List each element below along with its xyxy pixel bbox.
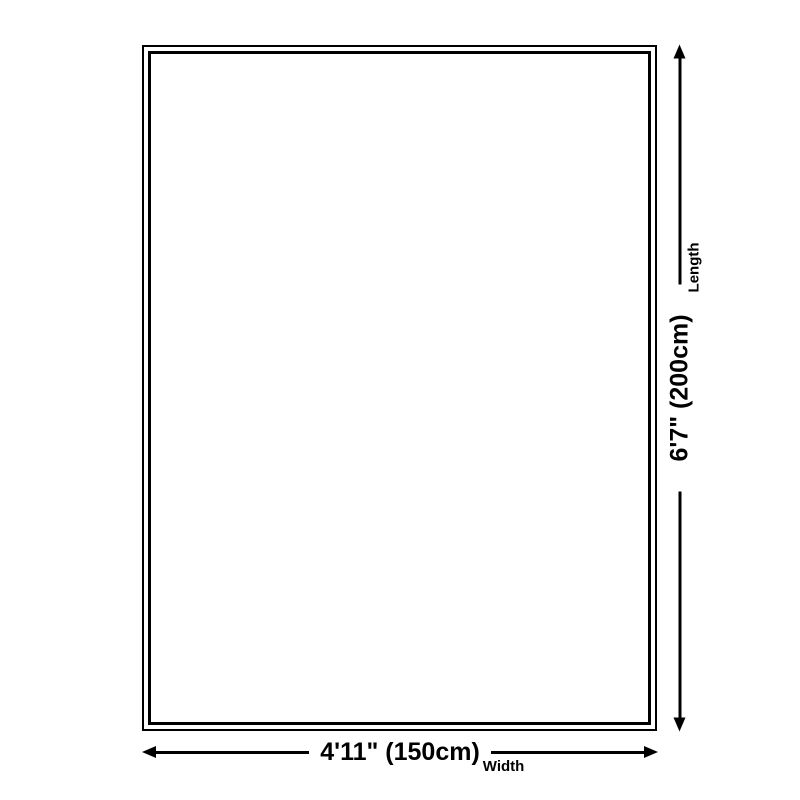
dimension-line-segment: Length bbox=[678, 58, 681, 284]
size-diagram: 4'11" (150cm) Width 6'7" (200cm) Length bbox=[0, 0, 800, 800]
length-dimension: 6'7" (200cm) Length bbox=[653, 45, 707, 732]
width-label: Width bbox=[483, 759, 525, 774]
length-label: Length bbox=[686, 242, 701, 292]
dimension-line-segment bbox=[678, 492, 681, 718]
product-outline-inner bbox=[148, 51, 651, 725]
product-outline-outer bbox=[142, 45, 657, 731]
arrow-right-icon bbox=[644, 746, 658, 758]
dimension-line-segment: Width bbox=[491, 751, 644, 754]
width-value: 4'11" (150cm) bbox=[320, 740, 480, 765]
dimension-line-segment bbox=[156, 751, 309, 754]
width-dimension: 4'11" (150cm) Width bbox=[142, 725, 658, 779]
arrow-up-icon bbox=[674, 44, 686, 58]
length-value: 6'7" (200cm) bbox=[667, 314, 692, 461]
arrow-left-icon bbox=[142, 746, 156, 758]
arrow-down-icon bbox=[674, 718, 686, 732]
